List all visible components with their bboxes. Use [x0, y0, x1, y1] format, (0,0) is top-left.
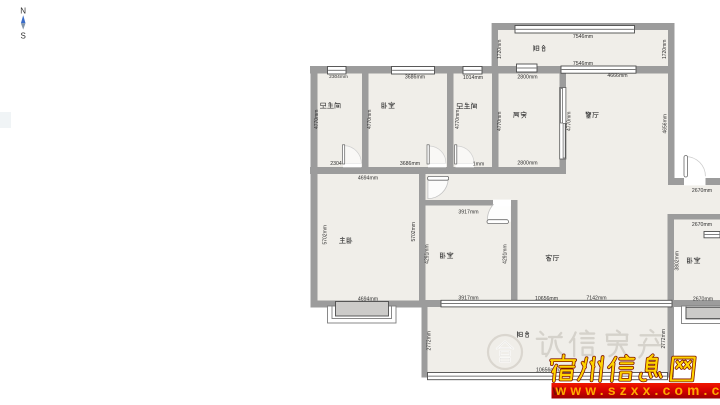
svg-text:2670mm: 2670mm — [692, 222, 712, 228]
svg-text:2670mm: 2670mm — [693, 297, 713, 303]
svg-text:4291mm: 4291mm — [502, 244, 508, 263]
svg-text:2800mm: 2800mm — [517, 74, 537, 80]
svg-text:3917mm: 3917mm — [458, 296, 478, 302]
svg-text:4770mm: 4770mm — [314, 110, 320, 129]
svg-text:4666mm: 4666mm — [607, 73, 627, 79]
svg-text:1720mm: 1720mm — [497, 40, 503, 59]
svg-text:1014mm: 1014mm — [463, 75, 483, 81]
svg-text:4694mm: 4694mm — [358, 296, 378, 302]
svg-text:4770mm: 4770mm — [567, 112, 573, 131]
svg-text:3686mm: 3686mm — [405, 74, 425, 80]
svg-text:S: S — [21, 32, 26, 41]
svg-text:2800mm: 2800mm — [517, 160, 537, 166]
svg-text:5702mm: 5702mm — [323, 225, 329, 244]
svg-text:2304mm: 2304mm — [329, 74, 348, 80]
svg-text:4770mm: 4770mm — [497, 112, 503, 131]
svg-text:4770mm: 4770mm — [455, 110, 461, 129]
svg-text:3686mm: 3686mm — [400, 161, 420, 167]
svg-text:3802mm: 3802mm — [675, 251, 681, 270]
svg-text:7142mm: 7142mm — [586, 295, 606, 301]
svg-text:2304: 2304 — [330, 161, 342, 167]
svg-text:3917mm: 3917mm — [458, 209, 478, 215]
svg-text:7546mm: 7546mm — [573, 61, 593, 67]
svg-text:5702mm: 5702mm — [411, 222, 417, 241]
svg-text:4291mm: 4291mm — [424, 244, 430, 263]
svg-text:www.szxx.com.c: www.szxx.com.c — [555, 383, 720, 398]
svg-text:10656mm: 10656mm — [535, 296, 558, 302]
svg-text:7546mm: 7546mm — [573, 34, 593, 40]
svg-text:1720mm: 1720mm — [662, 40, 668, 59]
svg-text:4656mm: 4656mm — [663, 114, 669, 133]
svg-text:2670mm: 2670mm — [692, 188, 712, 194]
svg-text:4770mm: 4770mm — [367, 110, 373, 129]
svg-text:1mm: 1mm — [473, 161, 485, 167]
svg-text:2772mm: 2772mm — [427, 331, 433, 350]
svg-text:4694mm: 4694mm — [358, 176, 378, 182]
svg-text:N: N — [20, 7, 26, 16]
